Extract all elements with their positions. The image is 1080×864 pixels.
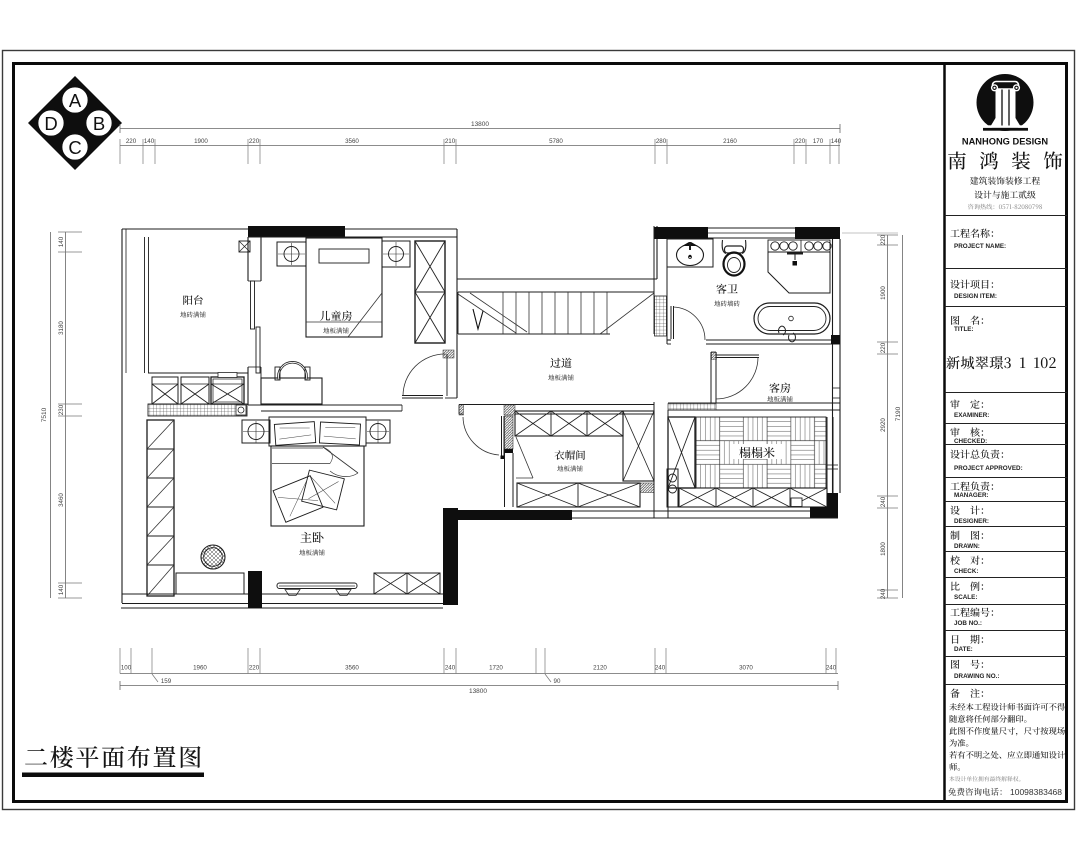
svg-text:3460: 3460 xyxy=(58,493,65,507)
svg-text:DESIGNER:: DESIGNER: xyxy=(954,518,989,525)
svg-text:220: 220 xyxy=(795,138,806,145)
svg-text:100: 100 xyxy=(121,665,132,672)
svg-text:240: 240 xyxy=(826,665,837,672)
svg-text:240: 240 xyxy=(445,665,456,672)
svg-text:159: 159 xyxy=(161,678,172,685)
svg-text:10098383468: 10098383468 xyxy=(1010,787,1062,797)
svg-text:240: 240 xyxy=(880,496,887,507)
svg-text:A: A xyxy=(69,90,82,111)
svg-text:1960: 1960 xyxy=(193,665,207,672)
svg-text:220: 220 xyxy=(880,234,887,245)
svg-text:240: 240 xyxy=(880,588,887,599)
svg-text:1720: 1720 xyxy=(489,665,503,672)
svg-text:EXAMINER:: EXAMINER: xyxy=(954,412,989,419)
svg-text:CHECK:: CHECK: xyxy=(954,568,979,575)
svg-text:SCALE:: SCALE: xyxy=(954,594,977,601)
svg-text:PROJECT APPROVED:: PROJECT APPROVED: xyxy=(954,465,1023,472)
svg-text:3560: 3560 xyxy=(345,138,359,145)
svg-text:7510: 7510 xyxy=(41,407,48,422)
svg-text:140: 140 xyxy=(58,236,65,247)
svg-text:140: 140 xyxy=(144,138,155,145)
svg-text:5780: 5780 xyxy=(549,138,563,145)
svg-text:PROJECT NAME:: PROJECT NAME: xyxy=(954,243,1006,250)
svg-text:DATE:: DATE: xyxy=(954,646,973,653)
svg-text:140: 140 xyxy=(58,584,65,595)
svg-text:280: 280 xyxy=(656,138,667,145)
svg-text:2160: 2160 xyxy=(723,138,737,145)
svg-text:2920: 2920 xyxy=(880,418,887,432)
svg-text:210: 210 xyxy=(445,138,456,145)
svg-text:220: 220 xyxy=(126,138,137,145)
svg-text:1900: 1900 xyxy=(880,286,887,300)
svg-text:90: 90 xyxy=(554,678,561,685)
svg-text:TITLE:: TITLE: xyxy=(954,326,974,333)
svg-text:3070: 3070 xyxy=(739,665,753,672)
svg-text:13800: 13800 xyxy=(469,688,487,695)
svg-text:3180: 3180 xyxy=(58,321,65,335)
svg-text:1800: 1800 xyxy=(880,542,887,556)
svg-text:13800: 13800 xyxy=(471,121,489,128)
svg-text:170: 170 xyxy=(813,138,824,145)
svg-text:220: 220 xyxy=(880,342,887,353)
svg-text:220: 220 xyxy=(249,138,260,145)
svg-text:140: 140 xyxy=(831,138,842,145)
svg-text:DRAWING NO.:: DRAWING NO.: xyxy=(954,673,999,680)
svg-text:240: 240 xyxy=(655,665,666,672)
svg-text:JOB NO.:: JOB NO.: xyxy=(954,620,982,627)
svg-text:7190: 7190 xyxy=(895,406,902,421)
svg-text:C: C xyxy=(68,137,81,158)
svg-text:230: 230 xyxy=(58,404,65,415)
svg-text:MANAGER:: MANAGER: xyxy=(954,492,989,499)
svg-text:NANHONG DESIGN: NANHONG DESIGN xyxy=(962,137,1049,147)
svg-text:DRAWN:: DRAWN: xyxy=(954,543,980,550)
svg-text:220: 220 xyxy=(249,665,260,672)
svg-text:B: B xyxy=(93,113,105,134)
svg-text:1900: 1900 xyxy=(194,138,208,145)
svg-text:D: D xyxy=(44,113,57,134)
svg-text:DESIGN ITEM:: DESIGN ITEM: xyxy=(954,293,997,300)
svg-text:3560: 3560 xyxy=(345,665,359,672)
svg-text:2120: 2120 xyxy=(593,665,607,672)
